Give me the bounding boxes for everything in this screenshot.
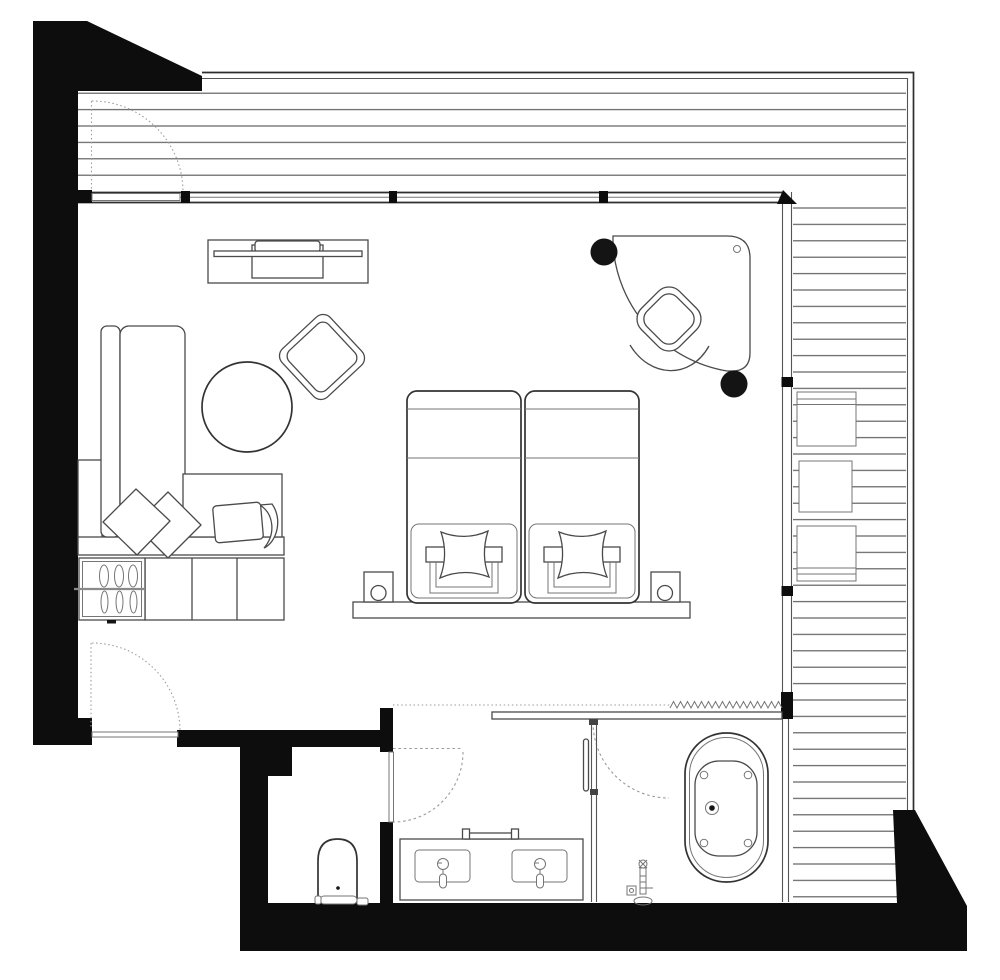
faucet-icon [535,859,546,870]
nightstand-left [364,572,393,602]
sofa-chaise [78,326,284,558]
mullion-3 [389,191,397,203]
wc-east-pier-lower [380,822,393,905]
nightstand-right [651,572,680,602]
terrace-decking-north [78,90,906,190]
filler-stem [640,868,646,894]
east-mullion-2 [782,586,794,596]
headboard-bench [353,602,690,618]
floor-plan-drawing [0,0,1000,980]
table-lamp-icon [371,586,386,601]
tray-end-left [463,829,470,839]
tv-console [208,240,368,283]
faucet-handle [440,874,447,888]
terrace-door-leaf [92,194,180,201]
chaise-arm [101,326,120,537]
toilet-drain [336,886,340,890]
twin-bed-left [407,391,521,603]
living-area [74,240,369,624]
shower-hinge-top [589,719,598,725]
south-living-wall [177,730,380,747]
shower [584,719,654,905]
cabinet-mark [107,620,116,624]
deck-cushion-boxes [797,392,856,581]
vanity-tray [463,829,519,839]
entry-door-leaf [92,732,178,737]
toilet [315,839,368,905]
bath-deck-pier [781,692,793,719]
armchair-inner [284,319,360,395]
mullion-2 [181,191,190,203]
toilet-foot [357,898,368,905]
wc-west-wall [240,746,268,906]
deck-box-2 [799,461,852,512]
entry-door-swing-arc [92,643,180,731]
stool-icon [591,239,618,266]
deck-box-1 [797,392,856,446]
wall-shelf [492,712,782,719]
sleeping-area [353,391,690,618]
bed-pillow [440,531,489,578]
shower-door-handle [584,739,589,791]
faucet-handle [537,874,544,888]
round-table [202,362,292,452]
table-lamp-icon [658,586,673,601]
storage-cabinet [74,558,284,624]
shower-door-swing-arc [593,722,669,798]
filler-cross-handle [639,860,647,868]
tv-screen [214,251,362,257]
toilet-bowl [318,839,357,903]
tub-drain [709,805,715,811]
double-vanity [400,829,583,900]
entry-door [91,643,180,737]
stool-icon [721,371,748,398]
toilet-base [320,896,357,904]
bathroom-door-swing-arc [393,752,463,822]
floor-plan-page [0,0,1000,980]
towel-radiator-zigzag [670,702,782,709]
tray-bar [465,833,517,839]
shower-hinge-mid [590,789,598,795]
cabinet-row [145,558,284,620]
tray-end-right [512,829,519,839]
toilet-tab [315,896,321,904]
east-mullion-1 [782,377,794,387]
shower-door [593,722,669,798]
mullion-1 [78,190,92,203]
wc-east-pier-upper [380,708,393,752]
bathroom-door [389,749,463,823]
bed-pillow [558,531,607,578]
tub-basin [695,761,757,856]
work-area [591,236,751,398]
twin-bed-right [525,391,639,603]
bathroom-door-leaf [389,752,394,822]
mullion-4 [599,191,608,203]
deck-box-3 [797,526,856,581]
tub-filler [627,860,653,905]
freestanding-bathtub [685,733,768,882]
faucet-icon [438,859,449,870]
pillow-square [213,502,264,543]
wc-west-wall-step [268,746,292,776]
filler-valve [627,886,636,895]
